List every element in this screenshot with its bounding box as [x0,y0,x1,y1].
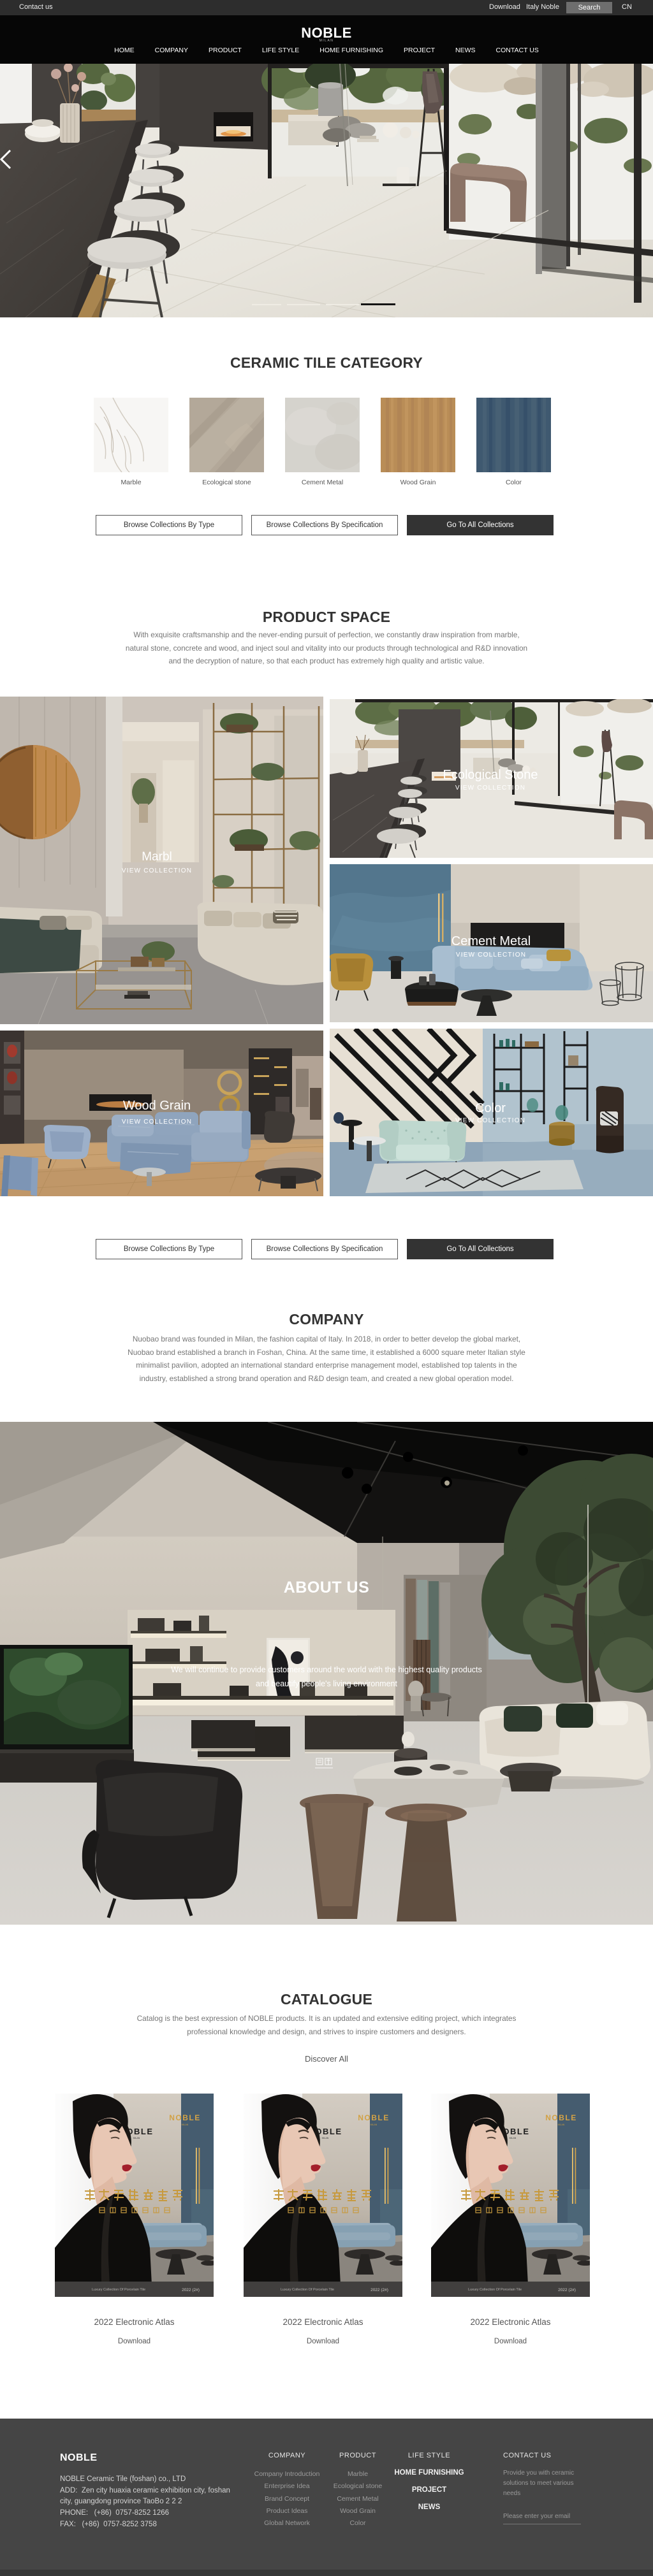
svg-text:VIEW COLLECTION: VIEW COLLECTION [122,1118,192,1125]
svg-text:VIEW COLLECTION: VIEW COLLECTION [122,867,192,874]
svg-text:Marbl: Marbl [142,850,172,864]
svg-text:VIEW COLLECTION: VIEW COLLECTION [455,785,525,792]
svg-text:VIEW COLLECTION: VIEW COLLECTION [456,952,526,959]
svg-text:We will continue to provide cu: We will continue to provide customers ar… [171,1665,482,1674]
svg-text:Cement Metal: Cement Metal [451,934,531,948]
svg-text:Wood Grain: Wood Grain [123,1099,191,1113]
svg-text:VIEW COLLECTION: VIEW COLLECTION [455,1117,525,1124]
svg-text:Color: Color [475,1101,506,1115]
svg-text:ABOUT US: ABOUT US [284,1579,370,1596]
svg-text:and beautify people's living e: and beautify people's living environment [256,1679,397,1688]
svg-text:Ecological Stone: Ecological Stone [443,768,538,782]
